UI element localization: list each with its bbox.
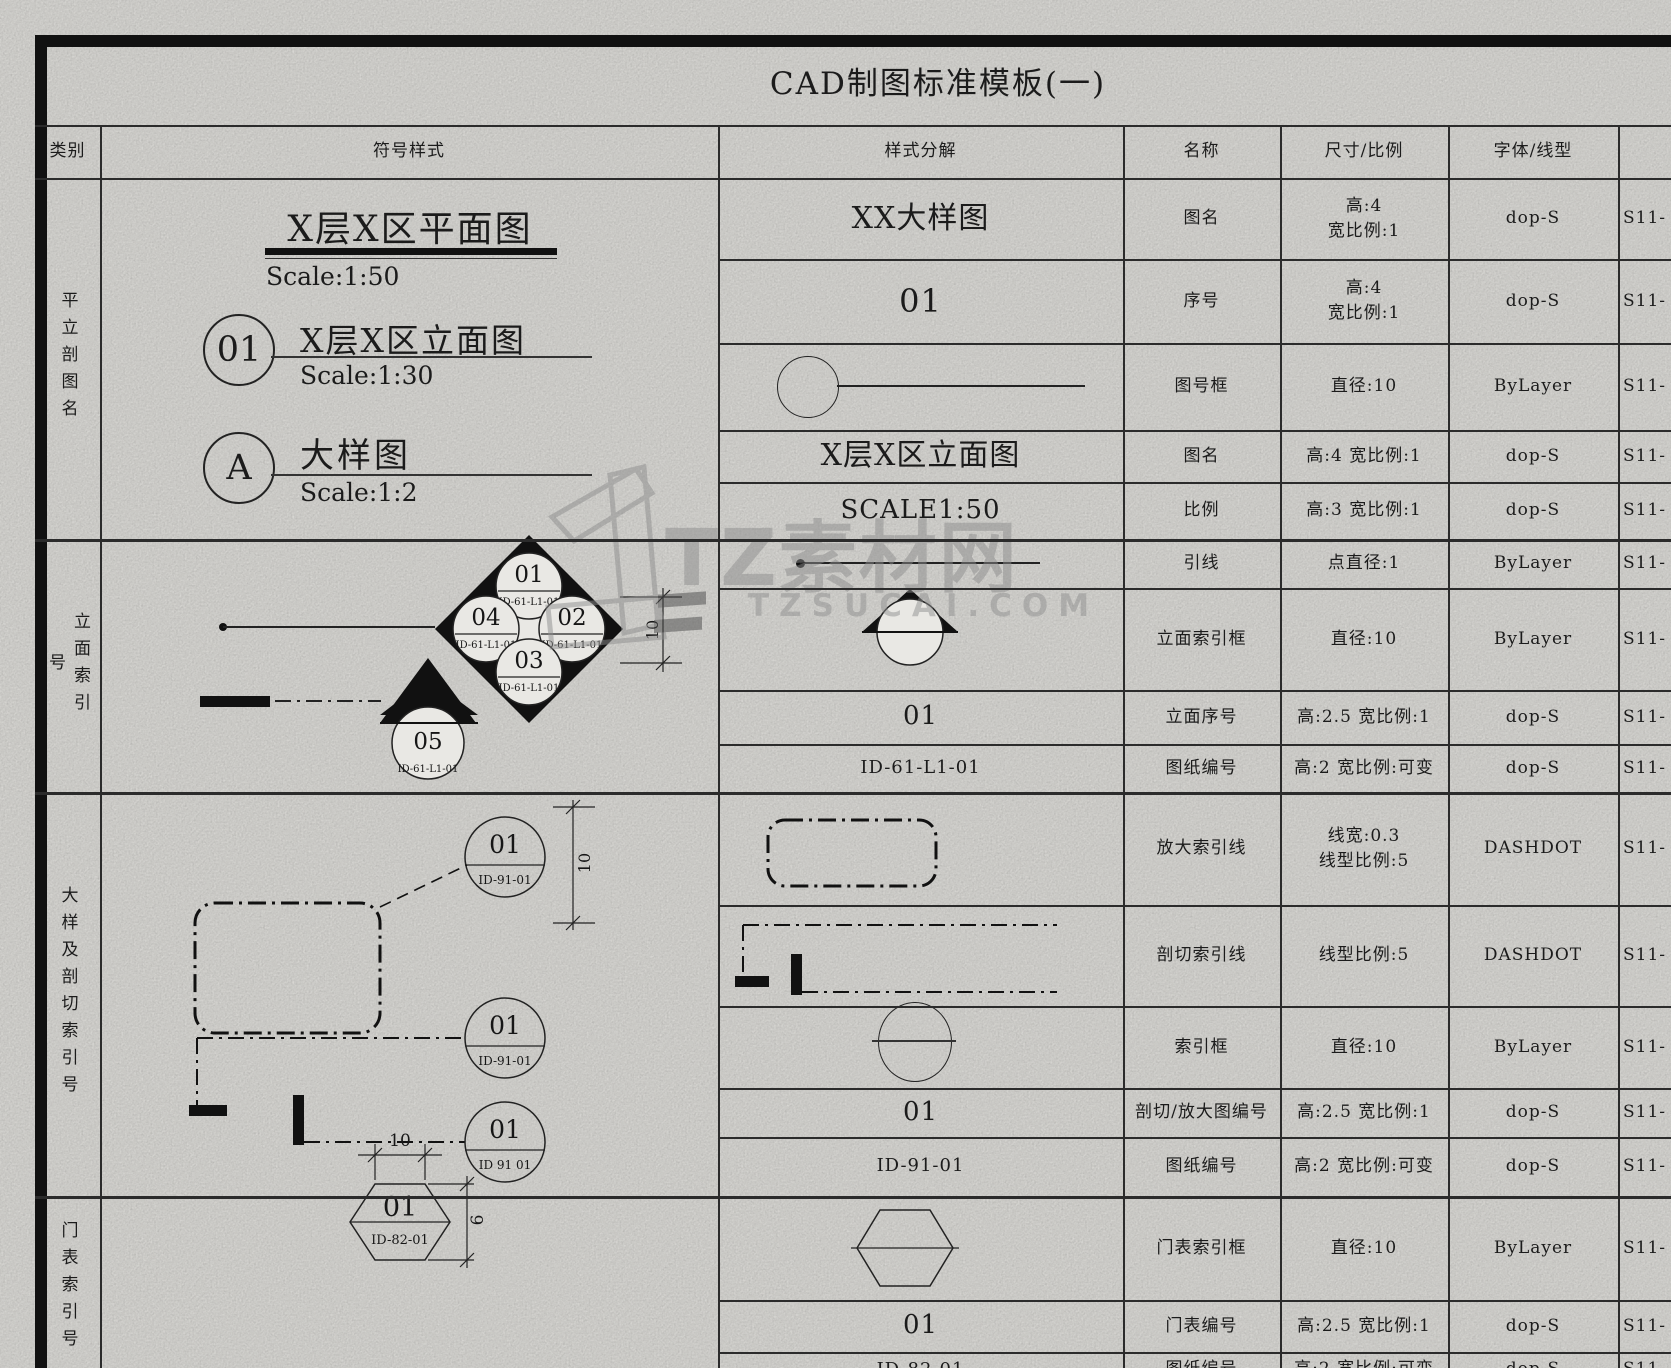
row-12-layer: S11- (1618, 1006, 1671, 1088)
plan-title-sample: X层X区平面图 (250, 200, 570, 252)
svg-text:6: 6 (468, 1215, 488, 1226)
row-14-layer: S11- (1618, 1137, 1671, 1196)
cut-index-line-1 (189, 1038, 465, 1116)
row-15-font-linetype: ByLayer (1448, 1196, 1618, 1300)
row-8-name: 立面序号 (1123, 690, 1280, 744)
svg-text:ID-82-01: ID-82-01 (371, 1233, 429, 1248)
header-style-breakdown: 样式分解 (718, 125, 1123, 178)
magnify-index-region (195, 903, 380, 1033)
magnify-index-bubble: 01 ID-91-01 (465, 817, 545, 897)
magnify-index-line-symbol (760, 812, 945, 894)
row-8-size-scale: 高:2.5 宽比例:1 (1280, 690, 1448, 744)
row-2-layer: S11- (1618, 259, 1671, 343)
row-13-size-scale: 高:2.5 宽比例:1 (1280, 1088, 1448, 1137)
category-detail-section-index: 大样及剖切索引号 (43, 872, 93, 1116)
row-9-name: 图纸编号 (1123, 744, 1280, 792)
row-16-size-scale: 高:2.5 宽比例:1 (1280, 1300, 1448, 1352)
detail-title-scale: Scale:1:2 (300, 478, 417, 507)
row-8-layer: S11- (1618, 690, 1671, 744)
row-3-size-scale: 直径:10 (1280, 343, 1448, 430)
row-4-name: 图名 (1123, 430, 1280, 482)
svg-text:05: 05 (413, 729, 442, 755)
cad-standard-template-sheet: CAD制图标准模板(一) 类别 符号样式 样式分解 名称 尺寸/比例 字体/线型… (0, 0, 1671, 1368)
elevation-index-single-symbol: 05 ID-61-L1-01 (195, 648, 485, 788)
row-15-size-scale: 直径:10 (1280, 1196, 1448, 1300)
row-4-layer: S11- (1618, 430, 1671, 482)
plan-title-underline (265, 248, 557, 255)
svg-text:ID-91-01: ID-91-01 (478, 873, 531, 887)
svg-text:04: 04 (471, 605, 500, 631)
row-13-name: 剖切/放大图编号 (1123, 1088, 1280, 1137)
row-16-breakdown-sample: 01 (718, 1300, 1123, 1352)
category-door-schedule-index: 门表索引号 (43, 1218, 93, 1358)
plan-title-underline-thin (265, 258, 557, 259)
row-11-size-scale: 线型比例:5 (1280, 905, 1448, 1006)
row-4-size-scale: 高:4 宽比例:1 (1280, 430, 1448, 482)
svg-text:01: 01 (489, 1011, 521, 1040)
category-plan-elev-section-names: 平立剖图名 (43, 288, 93, 428)
row-6-name: 引线 (1123, 539, 1280, 588)
index-frame-line (872, 1040, 956, 1042)
sheet-number-frame-symbol (777, 356, 839, 418)
row-3-name: 图号框 (1123, 343, 1280, 430)
row-2-font-linetype: dop-S (1448, 259, 1618, 343)
row-10-font-linetype: DASHDOT (1448, 792, 1618, 905)
row-14-size-scale: 高:2 宽比例:可变 (1280, 1137, 1448, 1196)
row-1-layer: S11- (1618, 178, 1671, 259)
elevation-number-bubble: 01 (203, 314, 275, 386)
row-6-layer: S11- (1618, 539, 1671, 588)
elevation-index-frame-symbol (850, 584, 970, 674)
row-5-breakdown-sample: SCALE1:50 (718, 482, 1123, 539)
row-9-layer: S11- (1618, 744, 1671, 792)
row-17-name: 图纸编号 (1123, 1352, 1280, 1368)
row-10-layer: S11- (1618, 792, 1671, 905)
row-12-name: 索引框 (1123, 1006, 1280, 1088)
header-font-linetype: 字体/线型 (1448, 125, 1618, 178)
plan-title-scale: Scale:1:50 (266, 262, 399, 291)
row-5-name: 比例 (1123, 482, 1280, 539)
row-12-size-scale: 直径:10 (1280, 1006, 1448, 1088)
row-2-name: 序号 (1123, 259, 1280, 343)
row-10-name: 放大索引线 (1123, 792, 1280, 905)
row-15-name: 门表索引框 (1123, 1196, 1280, 1300)
row-10-size-scale: 线宽:0.3 线型比例:5 (1280, 792, 1448, 905)
row-17-breakdown-sample: ID-82-01 (718, 1352, 1123, 1368)
header-category: 类别 (35, 125, 100, 178)
row-3-layer: S11- (1618, 343, 1671, 430)
row-14-name: 图纸编号 (1123, 1137, 1280, 1196)
row-11-layer: S11- (1618, 905, 1671, 1006)
category-elevation-index: 立面索引号 (43, 600, 93, 732)
row-1-size-scale: 高:4 宽比例:1 (1280, 178, 1448, 259)
page-title: CAD制图标准模板(一) (538, 58, 1338, 103)
row-7-name: 立面索引框 (1123, 588, 1280, 690)
row-5-layer: S11- (1618, 482, 1671, 539)
row-7-layer: S11- (1618, 588, 1671, 690)
row-16-layer: S11- (1618, 1300, 1671, 1352)
svg-text:01: 01 (489, 830, 521, 859)
index-frame-symbol (878, 1002, 952, 1082)
row-13-breakdown-sample: 01 (718, 1088, 1123, 1137)
row-4-font-linetype: dop-S (1448, 430, 1618, 482)
detail-title-sample: 大样图 (300, 428, 411, 477)
row-13-layer: S11- (1618, 1088, 1671, 1137)
row-2-size-scale: 高:4 宽比例:1 (1280, 259, 1448, 343)
leader-line-sample (800, 562, 1040, 564)
row-7-size-scale: 直径:10 (1280, 588, 1448, 690)
row-9-font-linetype: dop-S (1448, 744, 1618, 792)
magnify-index-leader (380, 865, 467, 907)
door-index-frame-symbol (845, 1194, 975, 1304)
cut-index-line-symbol (725, 912, 1070, 1002)
row-3-font-linetype: ByLayer (1448, 343, 1618, 430)
row-1-name: 图名 (1123, 178, 1280, 259)
svg-text:10: 10 (575, 853, 594, 873)
row-16-font-linetype: dop-S (1448, 1300, 1618, 1352)
elevation-title-scale: Scale:1:30 (300, 361, 433, 390)
grid-line (100, 125, 102, 1368)
svg-text:ID-91-01: ID-91-01 (478, 1054, 531, 1068)
row-12-font-linetype: ByLayer (1448, 1006, 1618, 1088)
leader-line (223, 626, 435, 628)
header-symbol-style: 符号样式 (100, 125, 718, 178)
row-15-layer: S11- (1618, 1196, 1671, 1300)
header-name: 名称 (1123, 125, 1280, 178)
row-11-font-linetype: DASHDOT (1448, 905, 1618, 1006)
section-index-bubble-2: 01 ID-91-01 (465, 998, 545, 1078)
row-11-name: 剖切索引线 (1123, 905, 1280, 1006)
watermark-pencil-graphic (540, 455, 730, 690)
row-9-size-scale: 高:2 宽比例:可变 (1280, 744, 1448, 792)
row-5-font-linetype: dop-S (1448, 482, 1618, 539)
row-6-font-linetype: ByLayer (1448, 539, 1618, 588)
row-2-breakdown-sample: 01 (718, 259, 1123, 343)
elevation-title-sample: X层X区立面图 (300, 314, 526, 362)
row-16-name: 门表编号 (1123, 1300, 1280, 1352)
sheet-number-frame-line (837, 385, 1085, 387)
row-17-size-scale: 高:2 宽比例:可变 (1280, 1352, 1448, 1368)
border-top (35, 35, 1671, 47)
row-17-font-linetype: dop-S (1448, 1352, 1618, 1368)
svg-text:ID-61-L1-01: ID-61-L1-01 (398, 764, 459, 775)
row-17-layer: S11- (1618, 1352, 1671, 1368)
door-index-symbol: 01 ID-82-01 10 6 (330, 1128, 520, 1303)
row-14-font-linetype: dop-S (1448, 1137, 1618, 1196)
row-6-size-scale: 点直径:1 (1280, 539, 1448, 588)
row-7-font-linetype: ByLayer (1448, 588, 1618, 690)
detail-letter-bubble: A (203, 432, 275, 504)
row-4-breakdown-sample: X层X区立面图 (718, 430, 1123, 482)
row-5-size-scale: 高:3 宽比例:1 (1280, 482, 1448, 539)
row-13-font-linetype: dop-S (1448, 1088, 1618, 1137)
header-size-scale: 尺寸/比例 (1280, 125, 1448, 178)
row-1-font-linetype: dop-S (1448, 178, 1618, 259)
row-8-font-linetype: dop-S (1448, 690, 1618, 744)
row-8-breakdown-sample: 01 (718, 690, 1123, 744)
row-14-breakdown-sample: ID-91-01 (718, 1137, 1123, 1196)
row-9-breakdown-sample: ID-61-L1-01 (718, 744, 1123, 792)
svg-text:10: 10 (389, 1131, 411, 1151)
row-1-breakdown-sample: XX大样图 (718, 178, 1123, 259)
